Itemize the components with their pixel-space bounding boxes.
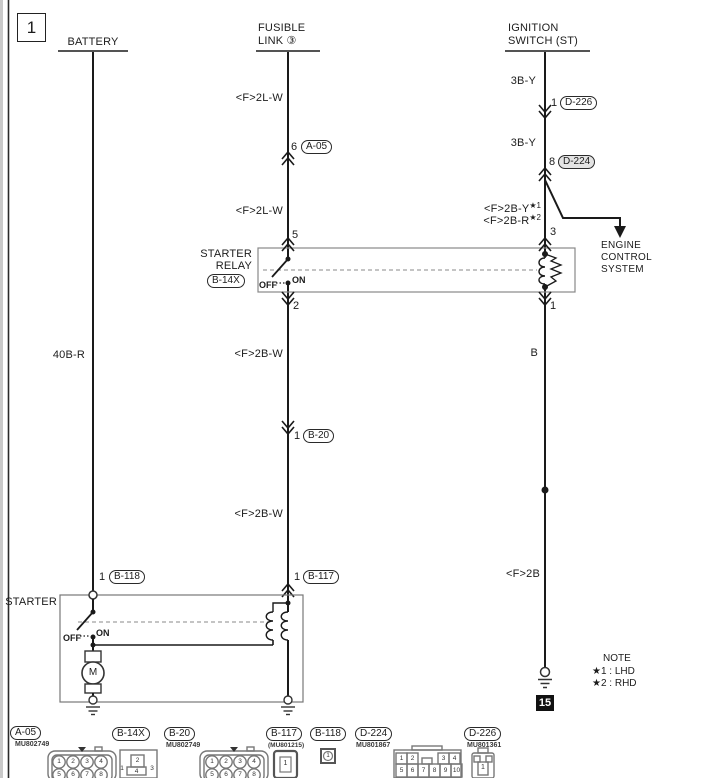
footer-pin: 4: [130, 768, 143, 776]
connector-d226-icon: [472, 748, 494, 778]
footer-pin: 4: [248, 758, 260, 766]
note-line-rhd: ★2 : RHD: [592, 678, 637, 690]
relay-resistor-icon: [545, 254, 561, 287]
wire-label-3b-y-1: 3B-Y: [496, 75, 536, 87]
relay-on-label: ON: [292, 275, 306, 285]
fusible-link-header-line1: FUSIBLE: [258, 22, 305, 34]
footer-pin: 2: [407, 755, 418, 763]
wire-label-2l-w-2: <F>2L-W: [233, 205, 283, 217]
pin-1-b117: 1: [294, 571, 300, 583]
wire-label-2b: <F>2B: [490, 568, 540, 580]
relay-pin-2: 2: [293, 300, 299, 312]
footer-pin: 9: [440, 767, 451, 775]
note-title: NOTE: [603, 653, 631, 665]
footer-ref-b14x: B-14X: [112, 727, 150, 741]
footer-pin: 6: [67, 771, 79, 778]
pin-6: 6: [291, 141, 297, 153]
footer-pin: 1: [322, 752, 334, 760]
pin-1-b118: 1: [99, 571, 105, 583]
wiring-diagram-page: 1 BATTERY FUSIBLE LINK ③ IGNITION SWITCH…: [0, 0, 704, 778]
footer-pin: 7: [81, 771, 93, 778]
footer-pin: 1: [396, 755, 407, 763]
footer-pin: 7: [418, 767, 429, 775]
ecs-arrowhead-icon: [614, 226, 626, 238]
connector-ref-d224: D-224: [558, 155, 595, 169]
footer-code-d226: MU801361: [467, 742, 501, 750]
starter-switch-icon: [77, 591, 273, 651]
relay-pin-5: 5: [292, 229, 298, 241]
footer-code-b117: (MU801215): [268, 742, 304, 750]
wire-label-3b-y-2: 3B-Y: [496, 137, 536, 149]
ground-ref-box: 15: [536, 695, 554, 711]
page-edge-strip: [0, 0, 3, 778]
starter-solenoid-coils-icon: [266, 601, 290, 697]
wire-label-b: B: [522, 347, 538, 359]
footer-ref-b20: B-20: [164, 727, 195, 741]
relay-pin-1: 1: [550, 300, 556, 312]
pin-1-b20: 1: [294, 430, 300, 442]
fusible-link-header-line2: LINK ③: [258, 35, 297, 47]
footer-ref-b118: B-118: [310, 727, 346, 741]
battery-header: BATTERY: [55, 36, 131, 48]
footer-pin: 8: [95, 771, 107, 778]
footer-code-d224: MU801867: [356, 742, 390, 750]
wire-junction-dot: [542, 487, 549, 494]
motor-letter: M: [87, 667, 99, 678]
relay-pin-3: 3: [550, 226, 556, 238]
connector-chevrons: [282, 105, 551, 597]
footer-code-b20: MU802749: [166, 742, 200, 750]
ecs-branch: [545, 180, 626, 238]
starter-relay-label-line1: STARTER: [192, 248, 252, 260]
wire-label-2l-w-1: <F>2L-W: [233, 92, 283, 104]
wire-label-40b-r: 40B-R: [40, 349, 85, 361]
footer-pin: 6: [407, 767, 418, 775]
main-ground-icon: [538, 668, 552, 688]
starter-off-label: OFF: [63, 633, 81, 643]
footer-pin: 4: [449, 755, 460, 763]
note-line-lhd: ★1 : LHD: [592, 666, 635, 678]
connector-ref-b117: B-117: [303, 570, 339, 584]
pin-8-d224: 8: [549, 156, 555, 168]
footer-pin: 3: [81, 758, 93, 766]
footer-pin: 2: [67, 758, 79, 766]
footer-pin: 1: [53, 758, 65, 766]
footer-pin: 7: [234, 771, 246, 778]
engine-control-system-label: ENGINECONTROLSYSTEM: [601, 240, 652, 276]
connector-ref-d226: D-226: [560, 96, 597, 110]
footer-pin: 4: [95, 758, 107, 766]
footer-pin: 1: [477, 764, 489, 772]
footer-pin: 1: [279, 760, 292, 768]
starter-on-label: ON: [96, 628, 110, 638]
note-ref-2: ★2: [529, 213, 541, 222]
wire-label-2b-w-1: <F>2B-W: [233, 348, 283, 360]
footer-ref-d226: D-226: [464, 727, 501, 741]
footer-pin: 6: [220, 771, 232, 778]
footer-ref-b117: B-117: [266, 727, 302, 741]
footer-pin: 2: [131, 757, 144, 765]
connector-ref-b118: B-118: [109, 570, 145, 584]
wire-label-2b-r: <F>2B-R★2: [471, 212, 541, 227]
relay-off-label: OFF: [259, 280, 277, 290]
pin-1-d226: 1: [551, 97, 557, 109]
starter-ground-icons: [86, 696, 295, 715]
footer-pin: 2: [220, 758, 232, 766]
footer-pin: 5: [396, 767, 407, 775]
footer-pin: 8: [248, 771, 260, 778]
footer-pin: 8: [429, 767, 440, 775]
footer-pin: 3: [438, 755, 449, 763]
footer-pin: 10: [451, 767, 462, 775]
footer-pin: 3: [234, 758, 246, 766]
footer-ref-a05: A-05: [10, 726, 41, 740]
footer-pin: 1: [118, 765, 126, 773]
terminal-circle: [89, 591, 97, 599]
footer-ref-d224: D-224: [355, 727, 392, 741]
diagram-artwork: [0, 0, 704, 778]
ignition-header-line2: SWITCH (ST): [508, 35, 578, 47]
starter-label: STARTER: [0, 596, 57, 608]
footer-code-a05: MU802749: [15, 741, 49, 749]
relay-coil-icon: [539, 251, 561, 290]
footer-pin: 5: [53, 771, 65, 778]
wire-label-2b-w-2: <F>2B-W: [233, 508, 283, 520]
connector-ref-b14x: B-14X: [207, 274, 245, 288]
starter-relay-label-line2: RELAY: [192, 260, 252, 272]
footer-pin: 3: [148, 765, 156, 773]
footer-pin: 1: [206, 758, 218, 766]
ignition-header-line1: IGNITION: [508, 22, 559, 34]
note-ref-1: ★1: [529, 201, 541, 210]
footer-pin: 5: [206, 771, 218, 778]
page-number-badge: 1: [17, 13, 46, 42]
connector-ref-a05: A-05: [301, 140, 332, 154]
connector-ref-b20: B-20: [303, 429, 334, 443]
